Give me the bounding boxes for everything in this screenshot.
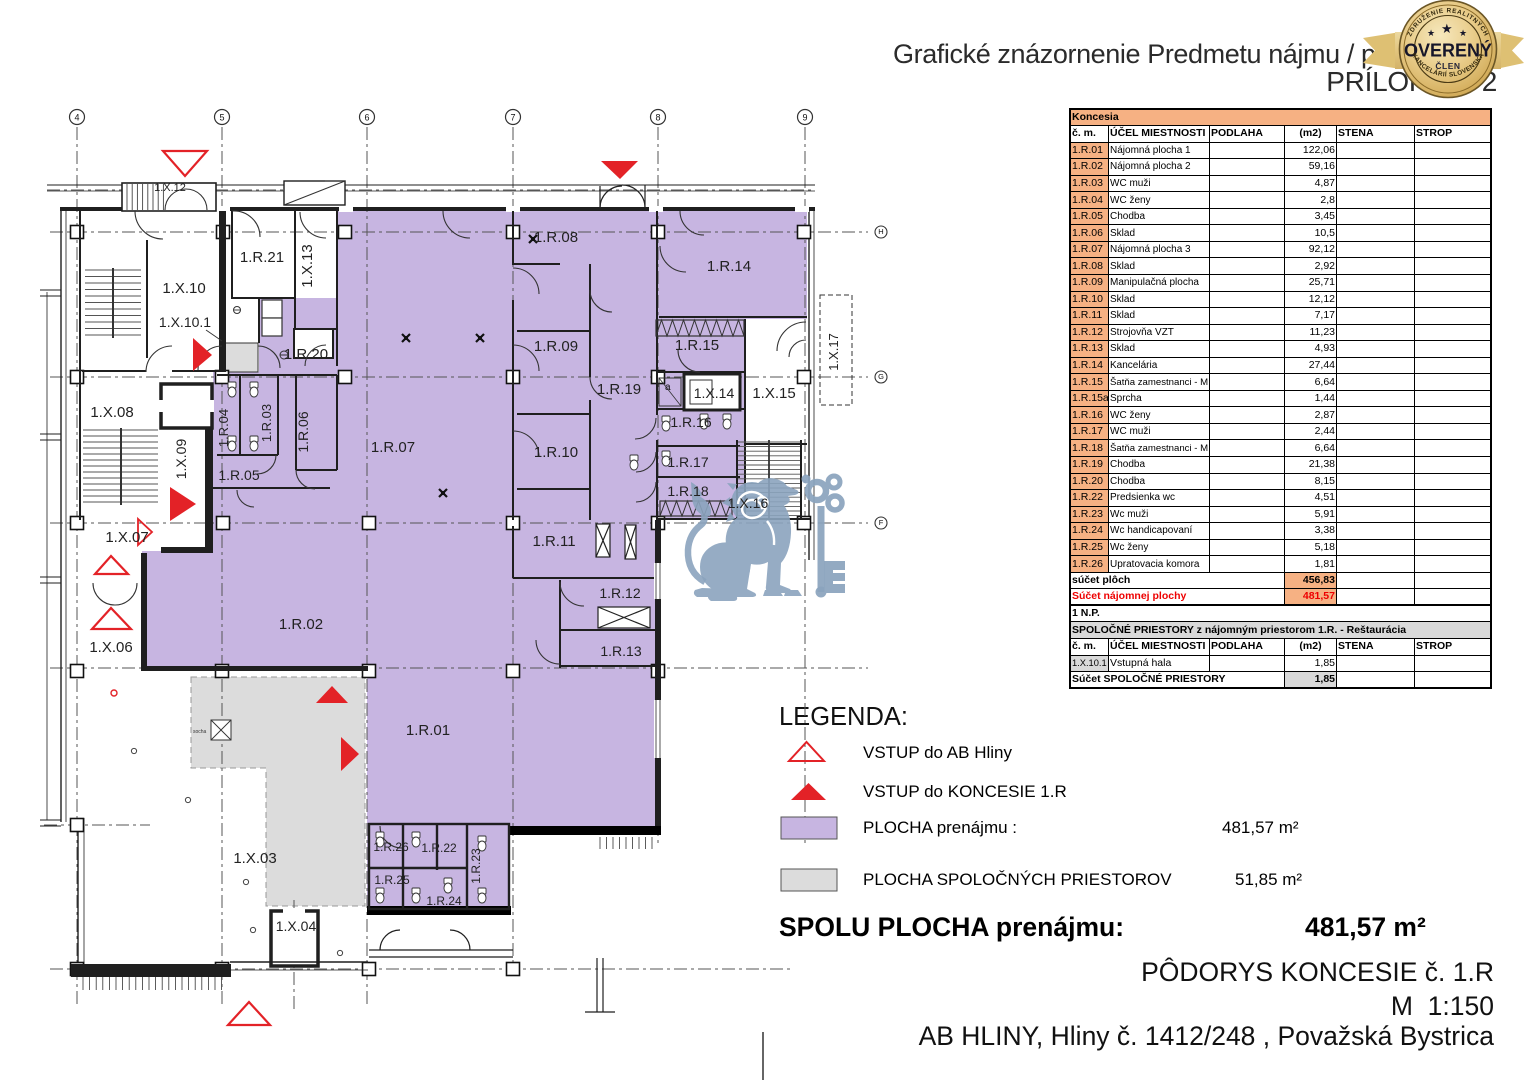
svg-text:a: a bbox=[665, 382, 671, 393]
svg-text:★: ★ bbox=[1441, 21, 1453, 36]
svg-text:1.X.15: 1.X.15 bbox=[752, 385, 795, 402]
svg-text:1.R.19: 1.R.19 bbox=[597, 381, 641, 398]
svg-text:1.X.09: 1.X.09 bbox=[173, 439, 189, 480]
svg-text:1.R.23: 1.R.23 bbox=[469, 848, 483, 884]
svg-text:1.R.16: 1.R.16 bbox=[670, 414, 711, 430]
svg-text:1.X.13: 1.X.13 bbox=[299, 244, 316, 287]
svg-text:1.R.24: 1.R.24 bbox=[426, 894, 462, 908]
svg-text:7: 7 bbox=[510, 113, 515, 123]
svg-text:1.R.26: 1.R.26 bbox=[373, 840, 409, 854]
svg-text:F: F bbox=[879, 518, 884, 527]
svg-text:1.R.17: 1.R.17 bbox=[667, 454, 708, 470]
svg-text:1.X.14: 1.X.14 bbox=[694, 385, 735, 401]
svg-text:1.R.04: 1.R.04 bbox=[216, 409, 231, 447]
svg-text:1.X.17: 1.X.17 bbox=[826, 333, 841, 371]
svg-text:1.X.03: 1.X.03 bbox=[233, 850, 276, 867]
svg-text:G: G bbox=[878, 372, 884, 381]
svg-text:1.R.18: 1.R.18 bbox=[667, 483, 708, 499]
svg-text:1.X.10: 1.X.10 bbox=[162, 280, 205, 297]
svg-text:1.X.16: 1.X.16 bbox=[728, 495, 769, 511]
svg-text:1.R.15: 1.R.15 bbox=[675, 337, 719, 354]
svg-text:1.R.25: 1.R.25 bbox=[374, 873, 410, 887]
svg-text:4: 4 bbox=[74, 113, 79, 123]
svg-text:1.R.07: 1.R.07 bbox=[371, 439, 415, 456]
svg-text:1.R.02: 1.R.02 bbox=[279, 616, 323, 633]
svg-text:1.R.01: 1.R.01 bbox=[406, 722, 450, 739]
svg-text:★: ★ bbox=[1459, 28, 1467, 38]
svg-text:1.R.12: 1.R.12 bbox=[599, 585, 640, 601]
svg-text:1.X.10.1: 1.X.10.1 bbox=[159, 314, 211, 330]
svg-text:1.R.05: 1.R.05 bbox=[218, 467, 259, 483]
svg-text:1.R.11: 1.R.11 bbox=[532, 533, 575, 550]
svg-text:1.R.03: 1.R.03 bbox=[259, 404, 274, 442]
svg-text:socha: socha bbox=[193, 729, 207, 735]
svg-text:1.R.22: 1.R.22 bbox=[421, 841, 457, 855]
svg-text:1.R.09: 1.R.09 bbox=[534, 338, 578, 355]
svg-text:1.R.14: 1.R.14 bbox=[707, 258, 751, 275]
svg-text:1.X.12: 1.X.12 bbox=[154, 182, 186, 194]
svg-text:★: ★ bbox=[1427, 28, 1435, 38]
svg-text:1.X.07: 1.X.07 bbox=[105, 529, 148, 546]
svg-text:1.R.06: 1.R.06 bbox=[295, 411, 311, 452]
svg-text:8: 8 bbox=[655, 113, 660, 123]
svg-text:6: 6 bbox=[364, 113, 369, 123]
svg-text:1.R.20: 1.R.20 bbox=[284, 346, 328, 363]
svg-text:1.R.10: 1.R.10 bbox=[534, 444, 578, 461]
svg-text:1.X.08: 1.X.08 bbox=[90, 404, 133, 421]
svg-text:5: 5 bbox=[219, 113, 224, 123]
svg-text:1.R.21: 1.R.21 bbox=[240, 249, 284, 266]
svg-text:9: 9 bbox=[802, 113, 807, 123]
svg-text:1.R.13: 1.R.13 bbox=[600, 643, 641, 659]
svg-text:1.R.08: 1.R.08 bbox=[534, 229, 578, 246]
svg-text:ČLEN: ČLEN bbox=[1435, 60, 1460, 71]
svg-text:1.X.04: 1.X.04 bbox=[276, 918, 317, 934]
svg-text:1.X.06: 1.X.06 bbox=[89, 639, 132, 656]
svg-text:H: H bbox=[878, 227, 883, 236]
